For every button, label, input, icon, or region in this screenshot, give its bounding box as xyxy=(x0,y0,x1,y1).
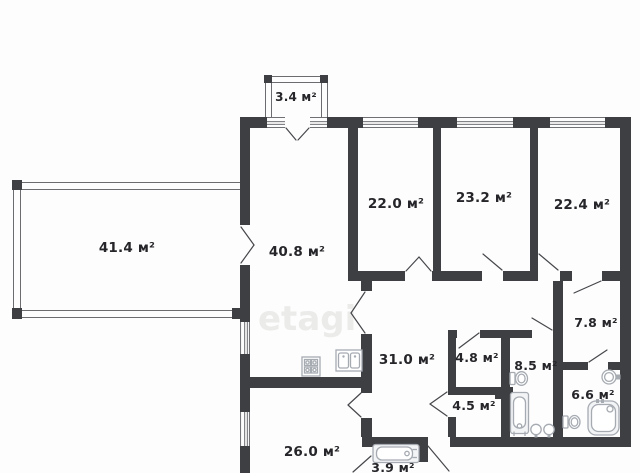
area-label-23-2: 23.2 м² xyxy=(456,190,512,206)
area-label-7-8: 7.8 м² xyxy=(574,315,617,330)
area-label-3-9: 3.9 м² xyxy=(371,460,414,473)
area-label-kitchen-living: 40.8 м² xyxy=(269,244,325,260)
area-label-8-5: 8.5 м² xyxy=(514,358,557,373)
room-26-0 xyxy=(250,388,361,473)
area-label-22-4: 22.4 м² xyxy=(554,197,610,213)
area-label-4-8: 4.8 м² xyxy=(455,350,498,365)
area-label-4-5: 4.5 м² xyxy=(452,398,495,413)
area-label-terrace: 41.4 м² xyxy=(99,240,155,256)
room-bathroom-8-5 xyxy=(510,338,553,437)
area-label-hall: 31.0 м² xyxy=(379,352,435,368)
room-bathroom-6-6 xyxy=(563,370,620,437)
floor-plan-canvas: etagi xyxy=(0,0,640,473)
area-label-balcony-small: 3.4 м² xyxy=(275,90,317,104)
area-label-6-6: 6.6 м² xyxy=(571,387,614,402)
floor-plan: etagi xyxy=(0,0,640,473)
area-label-22-0: 22.0 м² xyxy=(368,196,424,212)
area-label-26-0: 26.0 м² xyxy=(284,444,340,460)
